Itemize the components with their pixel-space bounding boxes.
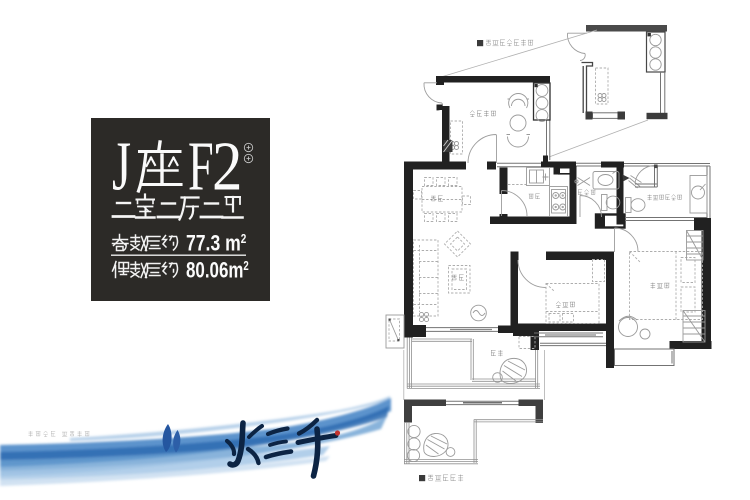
svg-text:2: 2	[212, 129, 242, 206]
svg-text:F: F	[188, 127, 214, 205]
svg-text:J: J	[112, 128, 131, 206]
svg-text:77.3 m2: 77.3 m2	[186, 232, 246, 256]
svg-text:80.06m2: 80.06m2	[186, 258, 249, 283]
